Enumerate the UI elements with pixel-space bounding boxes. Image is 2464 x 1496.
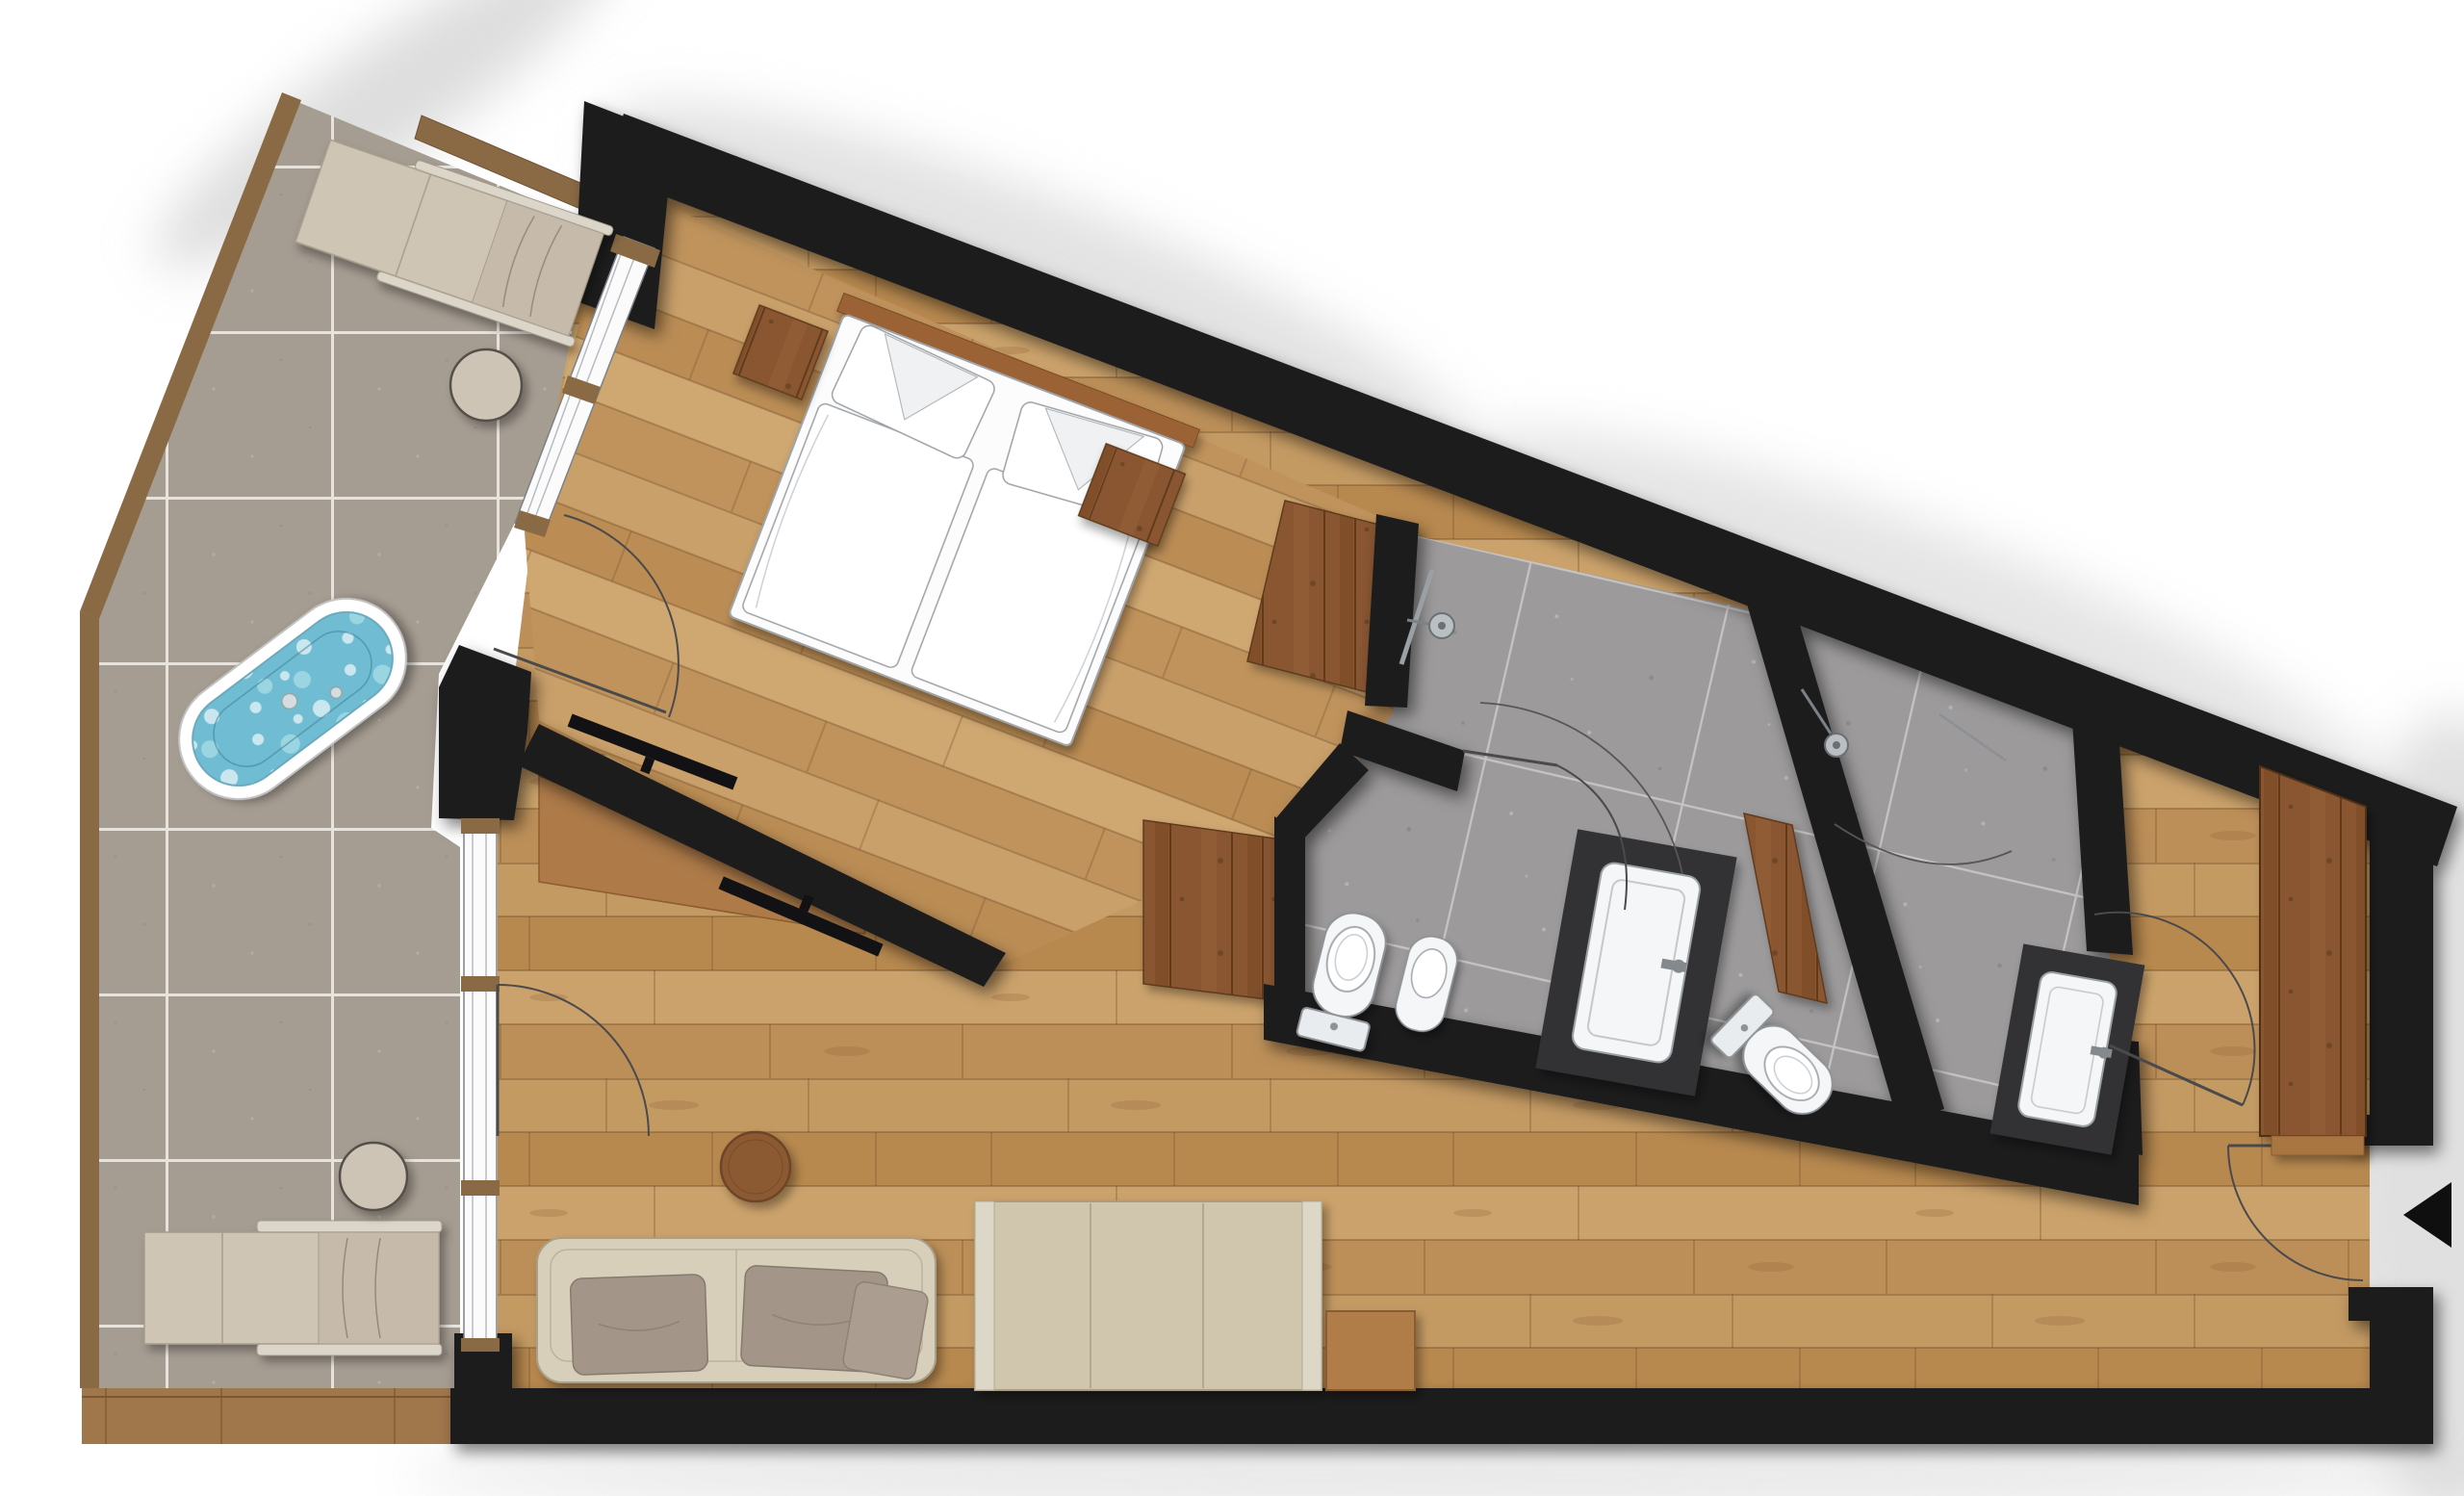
wall-right-upper (2370, 826, 2433, 1146)
window-mullion (461, 818, 500, 834)
dresser (1143, 820, 1282, 1001)
wardrobe-shelf (2271, 1136, 2364, 1155)
side-table-round (450, 349, 522, 421)
cushion (570, 1275, 707, 1376)
floor-plan-stage (0, 0, 2464, 1496)
wall-pier (439, 645, 531, 820)
sofa-cushion (570, 1275, 707, 1376)
sofa-cushion (842, 1280, 930, 1380)
daybed-rail (975, 1201, 994, 1390)
window-mullion (461, 1338, 500, 1352)
side-table (1326, 1311, 1415, 1390)
sofa (537, 1238, 936, 1382)
lounger-rail (257, 1344, 442, 1355)
floor-plan-root (0, 0, 2464, 1496)
window-mullion (461, 1180, 500, 1196)
window-band (464, 824, 497, 1350)
sun-lounger (144, 1221, 442, 1355)
terrace-deck-strip (82, 1388, 450, 1444)
stool-top (721, 1132, 790, 1201)
terrace-edge-wood (80, 611, 99, 1388)
cushion (842, 1280, 930, 1380)
wall-bottom (450, 1388, 2433, 1444)
window-mullion (461, 976, 500, 992)
door-jamb (2348, 1287, 2370, 1321)
stool (721, 1132, 790, 1201)
side-table-round (340, 1143, 407, 1210)
daybed-base (975, 1201, 1322, 1390)
wall-bath1-west (1274, 816, 1305, 1001)
wardrobe (2260, 766, 2366, 1155)
shower-head-center (1833, 741, 1840, 749)
shower-head-center (1438, 622, 1446, 630)
floor-plan-svg (0, 0, 2464, 1496)
daybed (975, 1201, 1322, 1390)
wardrobe-body (2260, 766, 2366, 1136)
window-living-terrace (461, 818, 500, 1352)
daybed-rail (1302, 1201, 1322, 1390)
lounger-rail (257, 1221, 442, 1232)
